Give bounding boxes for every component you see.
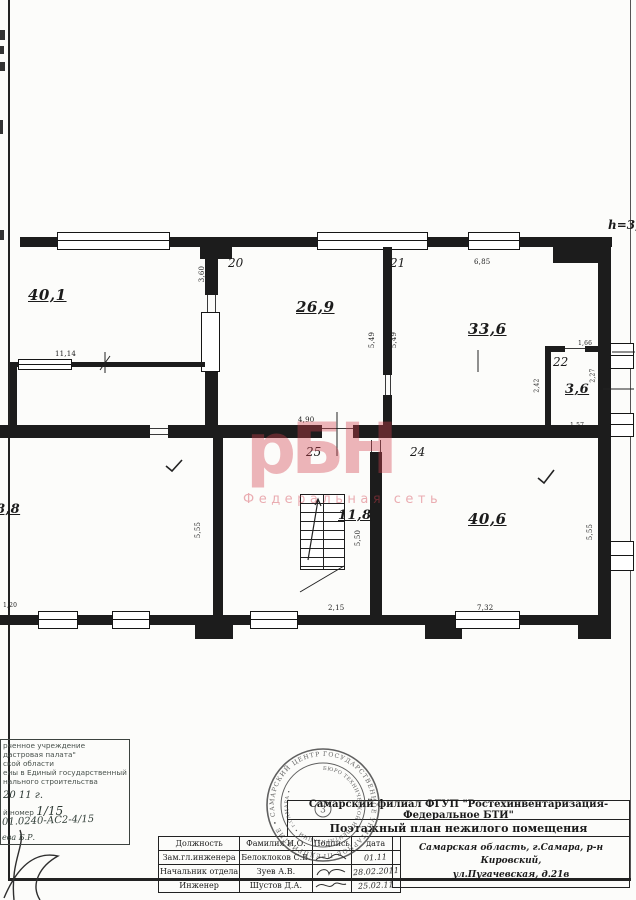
edge-smudge <box>0 120 3 134</box>
wall-interior <box>205 372 218 425</box>
address-line-2: ул.Пугачевская, д.21в <box>393 869 629 883</box>
cell-position: Начальник отдела <box>159 865 240 879</box>
window <box>610 541 634 571</box>
room-area-label: 40,1 <box>28 286 67 304</box>
check-mark <box>538 470 554 483</box>
window <box>112 611 150 629</box>
room-number: 21 <box>390 256 405 270</box>
edge-smudge <box>0 230 4 240</box>
door-opening <box>150 434 168 435</box>
room-number: 20 <box>228 256 243 270</box>
dimension: 5,55 <box>586 524 594 540</box>
stamp-date-line: 20 11 г. <box>3 790 128 802</box>
room-area-label: 11,8 <box>338 508 372 523</box>
dimension: 5,55 <box>194 522 202 538</box>
table-row: Инженер Шустов Д.А. 25.02.11 <box>159 879 401 893</box>
check-mark <box>166 460 182 471</box>
header-position: Должность <box>159 837 240 851</box>
window <box>455 611 520 629</box>
room-area-label: 26,9 <box>296 298 335 316</box>
dimension: 3,60 <box>198 266 206 282</box>
room-area-label: 3,6 <box>565 382 589 397</box>
dimension: 5,50 <box>354 530 362 546</box>
wall-stair-left <box>213 438 223 618</box>
dimension: 11,14 <box>55 350 76 358</box>
room-number: 22 <box>553 355 568 369</box>
window <box>250 611 298 629</box>
door-opening <box>565 348 585 349</box>
stamp-line: нального строительства <box>3 778 128 787</box>
wall-top <box>428 237 468 247</box>
round-seal: ГОСУДАРСТВЕННОЕ УНИТАРНОЕ ПРЕДПРИЯТИЕ • … <box>253 735 393 875</box>
dimension: 2,15 <box>328 604 344 612</box>
edge-smudge <box>0 30 5 40</box>
window <box>38 611 78 629</box>
room-number: 24 <box>410 445 425 459</box>
window <box>468 232 520 250</box>
room-area-label: 33,6 <box>468 320 507 338</box>
watermark-logo: рБН <box>246 414 393 484</box>
dimension: 6,85 <box>474 258 490 266</box>
seal-center-number: 3 <box>320 806 326 816</box>
registration-stamp: рченное учреждение дастровая палата" ско… <box>0 739 130 845</box>
wall-room22-left <box>545 352 551 425</box>
handwritten-name: ева Б.Р. <box>2 833 35 842</box>
window <box>57 232 170 250</box>
dimension: 2,42 <box>534 378 541 392</box>
window <box>18 359 72 370</box>
dimension: 1,20 <box>3 602 17 609</box>
dimension: 5,49 <box>368 332 376 348</box>
cell-name: Шустов Д.А. <box>240 879 312 893</box>
dimension: 1,57 <box>570 422 584 429</box>
window <box>317 232 428 250</box>
door-opening <box>215 295 216 312</box>
dimension: 2,27 <box>590 368 597 382</box>
wall-top <box>20 237 57 247</box>
watermark-subtitle: Федеральная сеть <box>243 492 442 507</box>
wall-middle <box>0 425 150 438</box>
edge-smudge <box>0 46 4 54</box>
dimension: 1,66 <box>578 340 592 347</box>
wall-interior <box>205 259 218 295</box>
cell-signature <box>312 879 351 893</box>
signature-squiggle <box>314 880 348 891</box>
door-opening <box>150 428 168 429</box>
edge-smudge <box>0 62 5 71</box>
address-line-1: Самарская область, г.Самара, р-н Кировск… <box>393 842 629 869</box>
dimension: 7,32 <box>477 604 493 612</box>
ceiling-height-note: h=3, <box>608 218 636 232</box>
wall-top <box>170 237 317 247</box>
cell-position: Зам.гл.инженера <box>159 851 240 865</box>
dimension: 5,49 <box>390 332 398 348</box>
room-area-label: 40,6 <box>468 510 507 528</box>
page-border-right <box>630 0 631 880</box>
window <box>610 413 634 437</box>
door-opening <box>207 295 208 312</box>
door-opening <box>385 375 386 395</box>
window <box>610 343 634 369</box>
cell-position: Инженер <box>159 879 240 893</box>
scanned-floor-plan-page: 40,1 26,9 33,6 3,6 11,8 40,6 8,8 20 21 2… <box>0 0 636 900</box>
door-opening <box>390 375 391 395</box>
title-block-address: Самарская область, г.Самара, р-н Кировск… <box>392 836 630 888</box>
room-area-label: 8,8 <box>0 502 20 517</box>
